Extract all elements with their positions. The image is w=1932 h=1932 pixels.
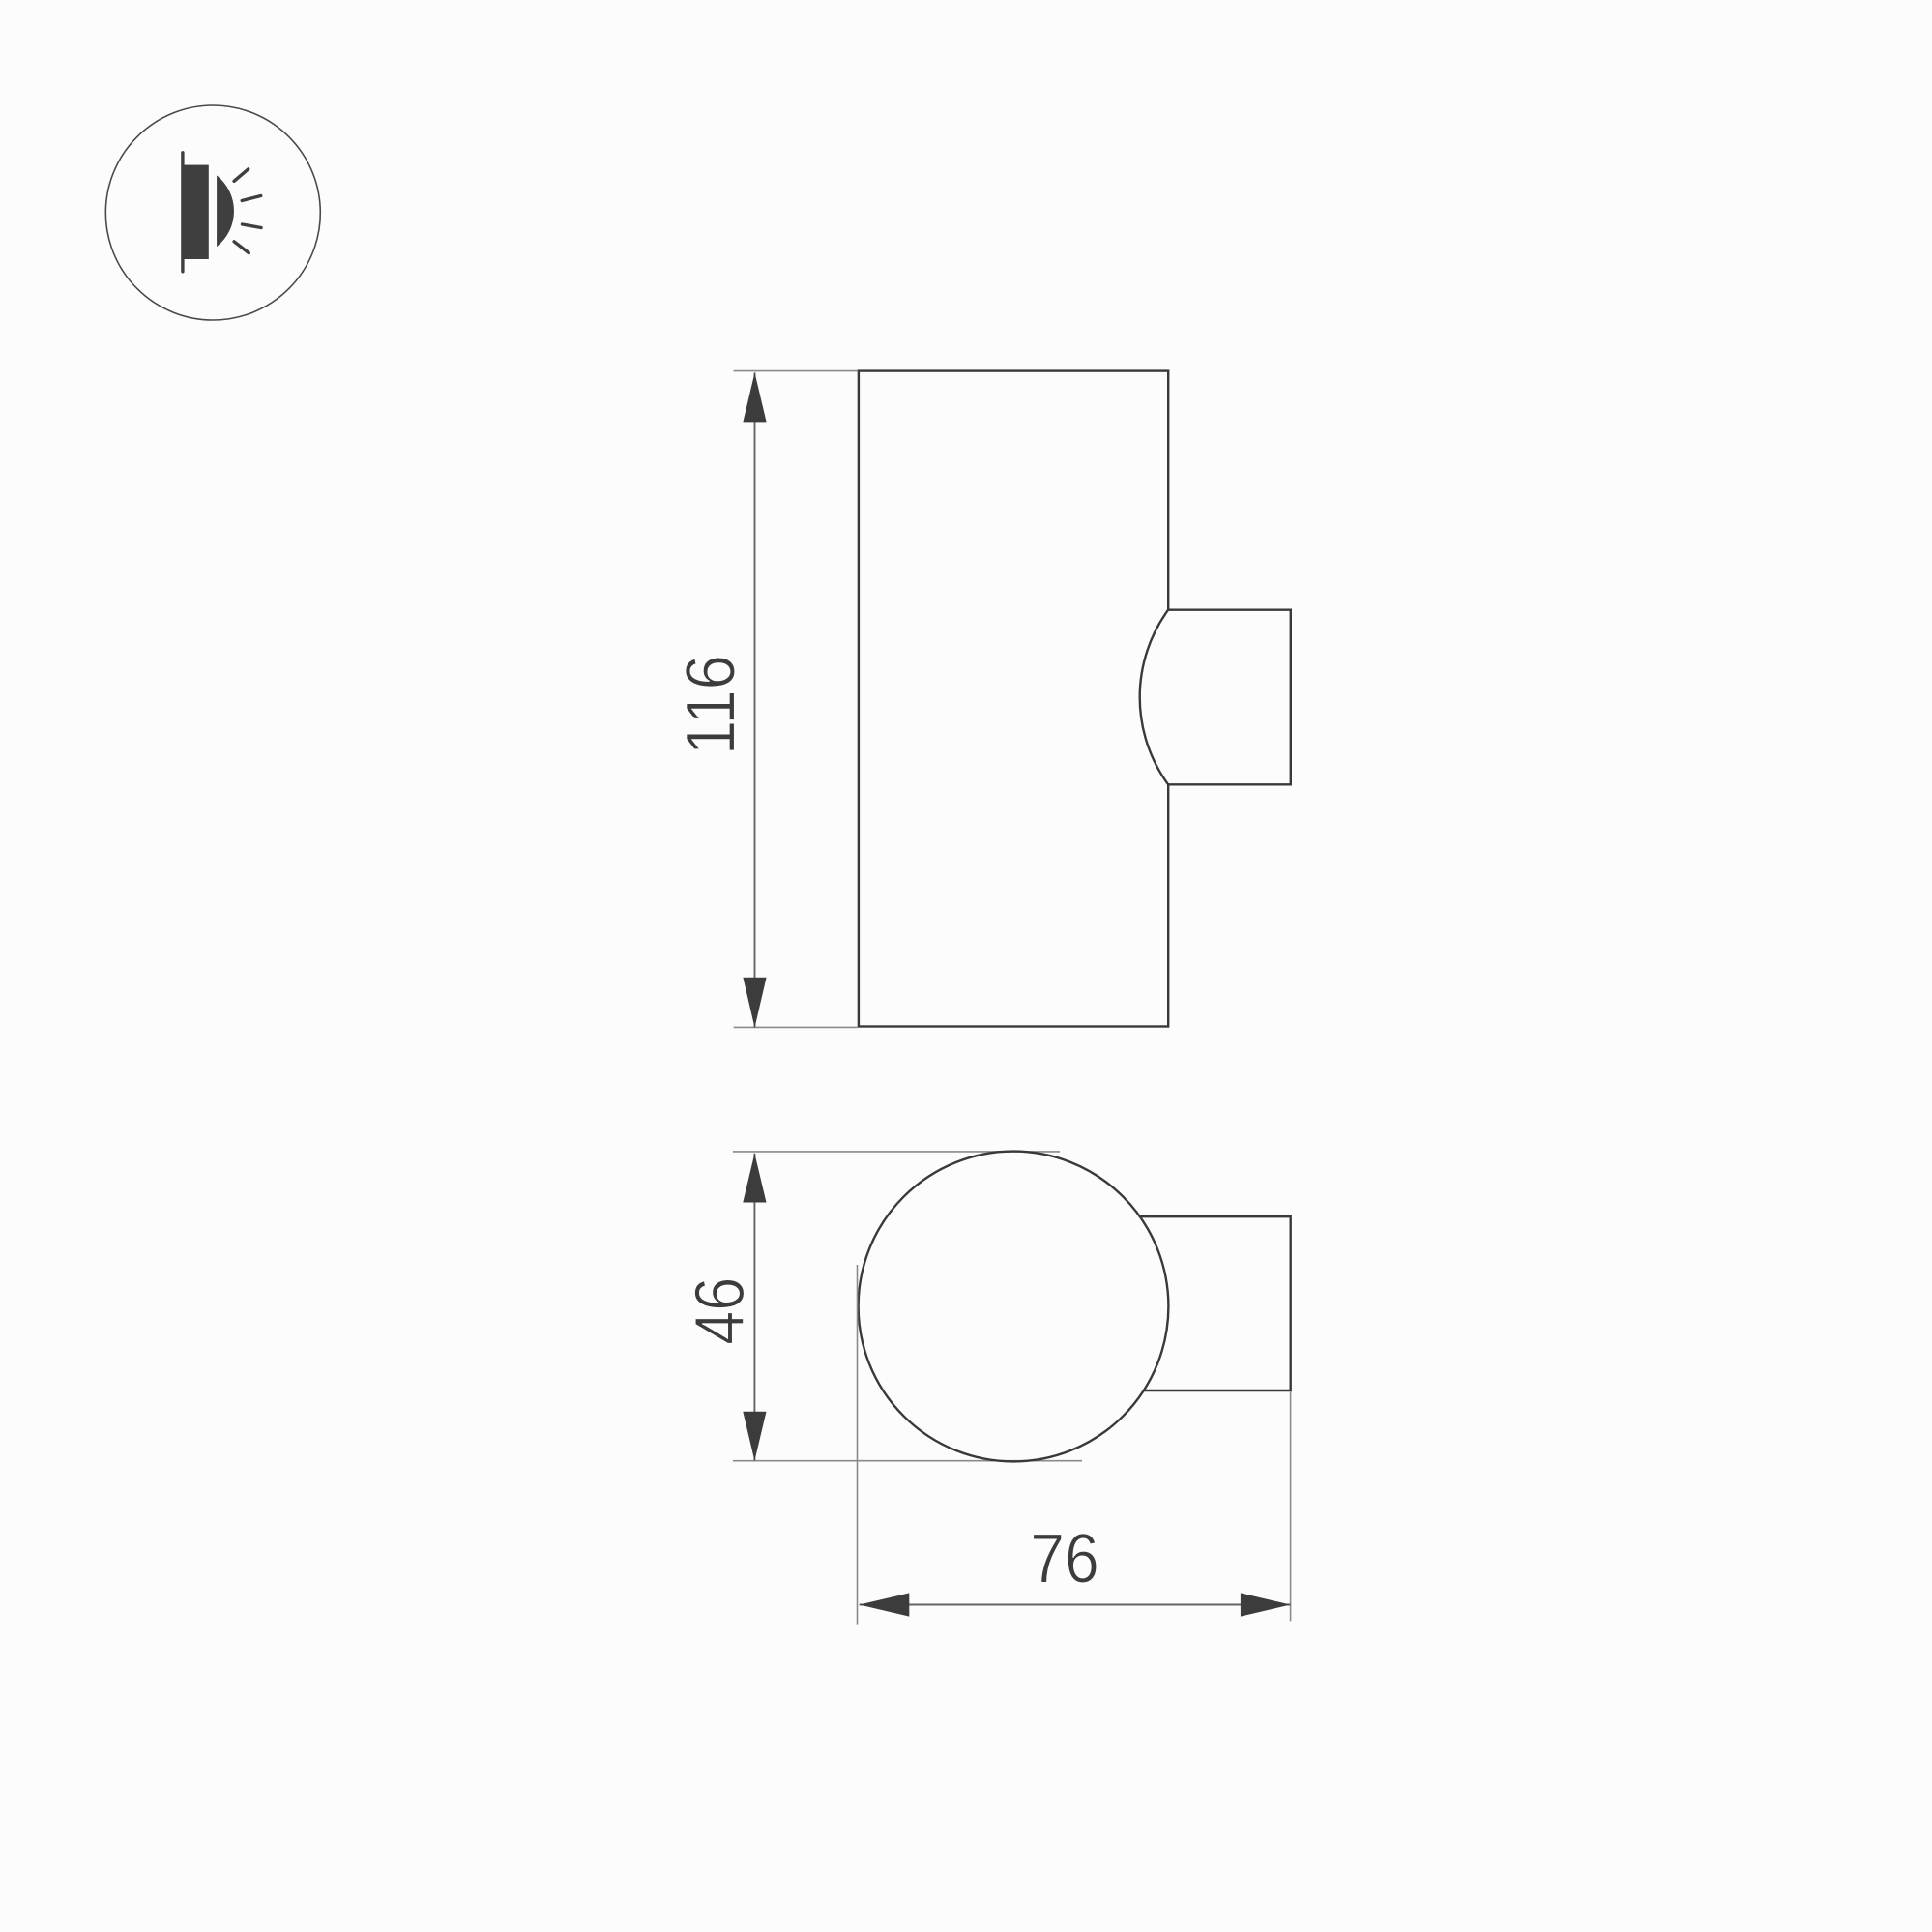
svg-text:76: 76 bbox=[1030, 1520, 1099, 1598]
svg-text:46: 46 bbox=[681, 1277, 759, 1345]
svg-text:116: 116 bbox=[671, 655, 749, 755]
